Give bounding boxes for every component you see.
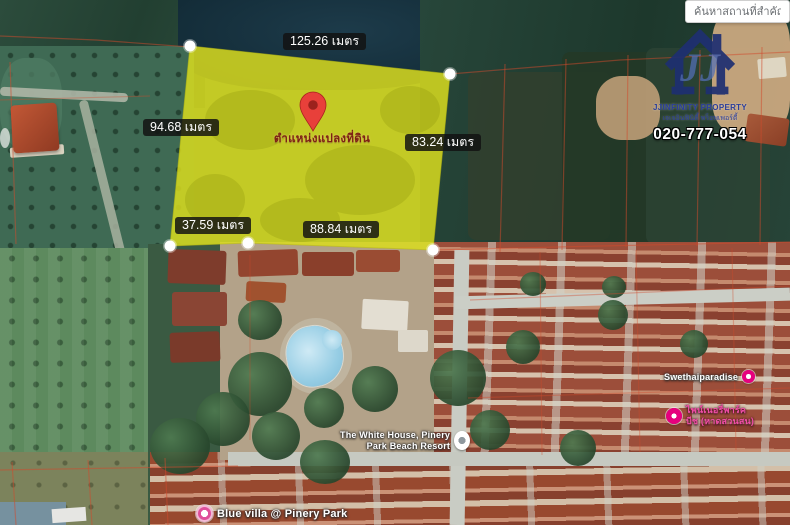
company-name: JJINFINITY PROPERTY [646,103,754,112]
poi-swethaiparadise[interactable]: Swethaiparadise [664,370,755,383]
measurement-label-top: 125.26 เมตร [283,33,366,50]
plot-caption: ตำแหน่งแปลงที่ดิน [256,130,388,148]
measurement-label-bottom: 88.84 เมตร [303,221,379,238]
lodging-poi-icon[interactable] [196,505,213,522]
generic-poi-icon[interactable] [454,431,470,450]
measurement-label-bottom-left: 37.59 เมตร [175,217,251,234]
measurement-label-right: 83.24 เมตร [405,134,481,151]
poi-label: Blue villa @ Pinery Park [217,508,347,520]
poi-label-line2: Park Beach Resort [340,441,450,452]
company-name-th: เจเจอินฟินิตี้ พร็อพเพอร์ตี้ [646,113,754,124]
svg-text:JJ: JJ [679,46,721,90]
poi-pinery-park-beach[interactable]: ไพน์เนอรี่พาร์ค บีช (หาดสวนสน) [666,405,754,426]
company-logo-house-icon: JJ [661,26,739,98]
phone-number: 020-777-054 [646,126,754,144]
search-input[interactable] [685,0,790,23]
company-branding: JJ JJINFINITY PROPERTY เจเจอินฟินิตี้ พร… [646,26,754,144]
lodging-poi-icon[interactable] [742,370,755,383]
poi-blue-villa[interactable]: Blue villa @ Pinery Park [196,505,347,522]
measurement-label-left: 94.68 เมตร [143,119,219,136]
poi-label: Swethaiparadise [664,372,738,382]
poi-label-line1: The White House, Pinery [340,430,450,441]
poi-label-line1: ไพน์เนอรี่พาร์ค [686,405,754,416]
poi-label-line2: บีช (หาดสวนสน) [686,416,754,427]
lodging-poi-icon[interactable] [666,408,682,424]
map-viewport[interactable]: 125.26 เมตร 94.68 เมตร 83.24 เมตร 37.59 … [0,0,790,525]
poi-white-house-resort[interactable]: The White House, Pinery Park Beach Resor… [340,430,470,451]
